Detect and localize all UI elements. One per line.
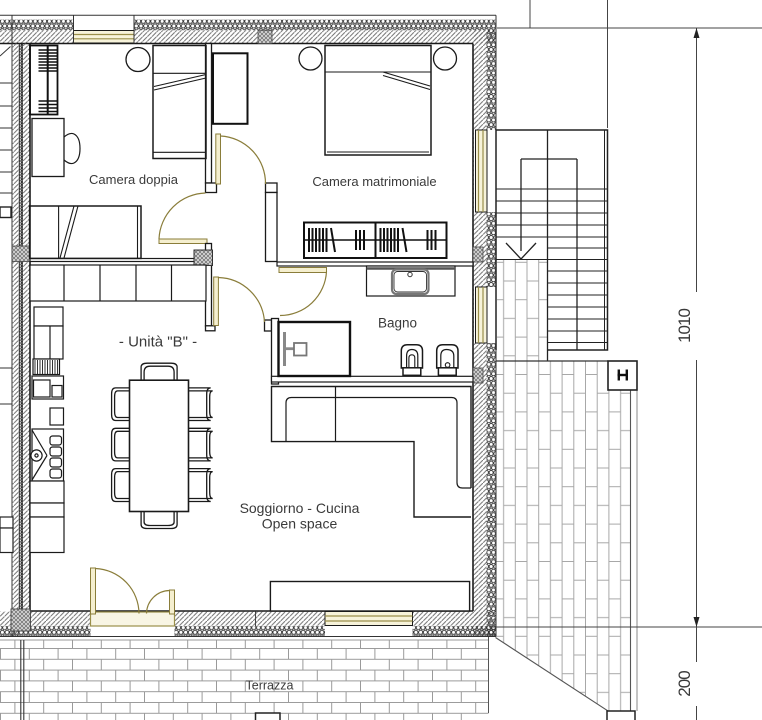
svg-text:Soggiorno - Cucina: Soggiorno - Cucina xyxy=(240,500,360,516)
svg-text:1010: 1010 xyxy=(675,309,694,343)
svg-text:Bagno: Bagno xyxy=(378,316,417,331)
svg-text:Camera matrimoniale: Camera matrimoniale xyxy=(312,174,436,189)
svg-text:Camera doppia: Camera doppia xyxy=(89,172,179,187)
svg-text:Open space: Open space xyxy=(262,516,338,532)
svg-text:- Unità "B" -: - Unità "B" - xyxy=(119,334,197,351)
svg-text:Terrazza: Terrazza xyxy=(246,679,294,693)
svg-text:200: 200 xyxy=(675,671,694,697)
